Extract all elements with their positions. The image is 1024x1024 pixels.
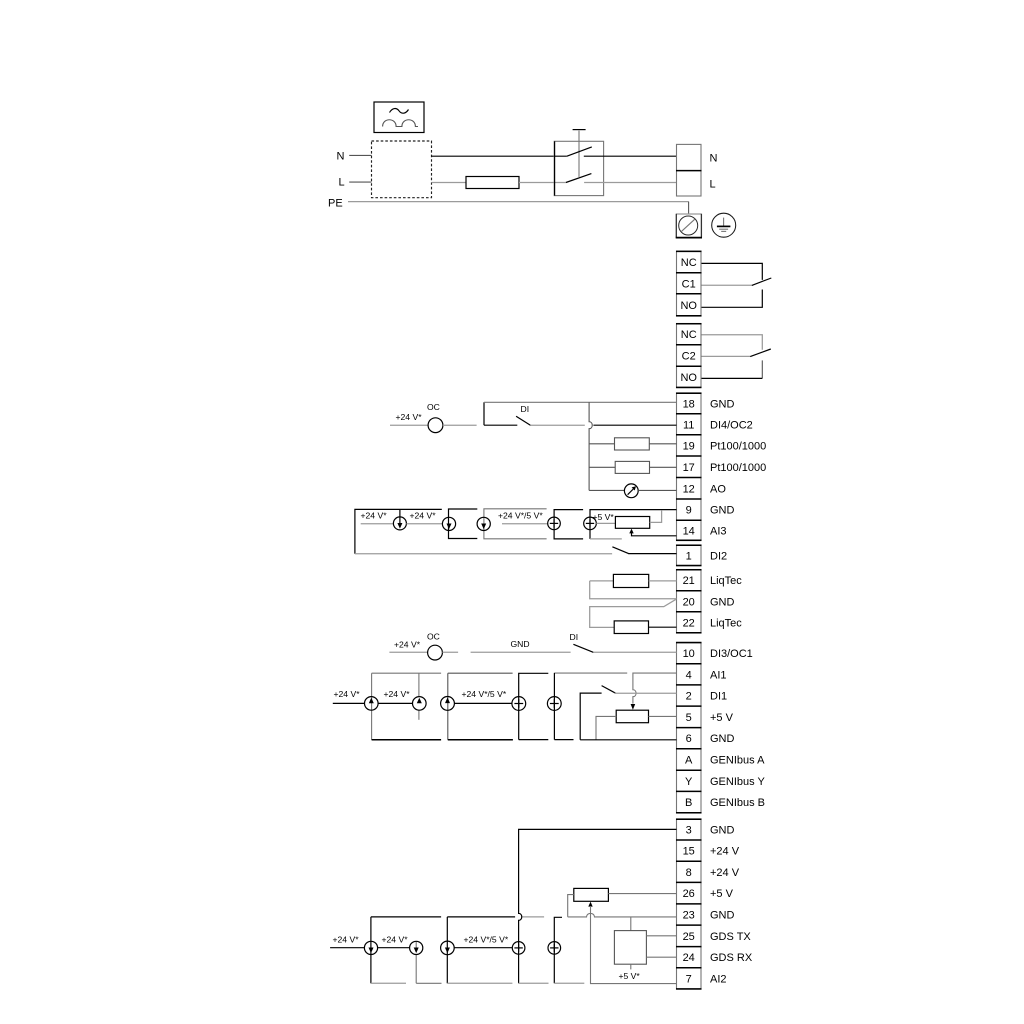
svg-text:Y: Y [685, 776, 693, 788]
svg-text:+24 V*/5 V*: +24 V*/5 V* [498, 511, 543, 521]
svg-text:8: 8 [686, 867, 692, 879]
svg-text:C2: C2 [682, 351, 696, 363]
svg-text:+5 V: +5 V [710, 712, 734, 724]
svg-text:LiqTec: LiqTec [710, 617, 742, 629]
svg-text:4: 4 [686, 669, 692, 681]
svg-text:12: 12 [683, 483, 695, 495]
svg-text:NO: NO [680, 300, 697, 312]
svg-text:GND: GND [710, 398, 735, 410]
svg-text:5: 5 [686, 712, 692, 724]
svg-text:GND: GND [710, 910, 735, 922]
svg-text:AI3: AI3 [710, 525, 727, 537]
svg-text:+24 V*/5 V*: +24 V*/5 V* [462, 689, 507, 699]
svg-text:DI: DI [521, 404, 530, 414]
svg-text:+5 V: +5 V [710, 888, 734, 900]
svg-text:Pt100/1000: Pt100/1000 [710, 440, 766, 452]
svg-text:AI1: AI1 [710, 669, 727, 681]
svg-text:DI3/OC1: DI3/OC1 [710, 648, 753, 660]
svg-text:9: 9 [686, 505, 692, 517]
svg-text:+24 V*: +24 V* [384, 689, 411, 699]
svg-text:25: 25 [683, 931, 695, 943]
svg-text:24: 24 [683, 952, 695, 964]
svg-text:GND: GND [710, 733, 735, 745]
svg-text:L: L [710, 179, 716, 191]
svg-text:AI2: AI2 [710, 973, 727, 985]
svg-text:GND: GND [710, 505, 735, 517]
svg-text:AO: AO [710, 483, 726, 495]
svg-text:OC: OC [427, 402, 440, 412]
svg-text:10: 10 [683, 648, 695, 660]
svg-text:GENIbus Y: GENIbus Y [710, 776, 765, 788]
svg-text:NC: NC [681, 329, 697, 341]
svg-text:20: 20 [683, 596, 695, 608]
svg-text:26: 26 [683, 888, 695, 900]
svg-text:PE: PE [328, 198, 343, 210]
svg-text:GDS RX: GDS RX [710, 952, 753, 964]
svg-text:23: 23 [683, 910, 695, 922]
svg-text:GND: GND [511, 639, 530, 649]
svg-text:+24 V*: +24 V* [410, 511, 437, 521]
svg-text:N: N [337, 151, 345, 163]
svg-text:3: 3 [686, 824, 692, 836]
svg-text:C1: C1 [682, 278, 696, 290]
svg-text:+24 V*: +24 V* [394, 640, 421, 650]
svg-text:OC: OC [427, 632, 440, 642]
svg-text:15: 15 [683, 846, 695, 858]
svg-text:NO: NO [680, 372, 697, 384]
svg-text:1: 1 [686, 550, 692, 562]
svg-text:+24 V*: +24 V* [334, 689, 361, 699]
svg-text:+24 V*: +24 V* [382, 935, 409, 945]
svg-text:Pt100/1000: Pt100/1000 [710, 462, 766, 474]
svg-text:+24 V*/5 V*: +24 V*/5 V* [464, 935, 509, 945]
svg-text:+24 V: +24 V [710, 846, 740, 858]
svg-text:GENIbus B: GENIbus B [710, 797, 765, 809]
svg-text:GND: GND [710, 824, 735, 836]
svg-text:+24 V: +24 V [710, 867, 740, 879]
svg-text:LiqTec: LiqTec [710, 575, 742, 587]
svg-text:+5 V*: +5 V* [593, 512, 615, 522]
svg-text:DI1: DI1 [710, 691, 727, 703]
svg-text:GENIbus A: GENIbus A [710, 755, 765, 767]
svg-text:N: N [710, 153, 718, 165]
svg-text:14: 14 [683, 525, 695, 537]
svg-text:GDS TX: GDS TX [710, 931, 751, 943]
svg-text:+24 V*: +24 V* [333, 935, 360, 945]
svg-text:B: B [685, 797, 692, 809]
svg-text:21: 21 [683, 575, 695, 587]
svg-text:A: A [685, 755, 693, 767]
svg-text:+24 V*: +24 V* [361, 511, 388, 521]
svg-text:2: 2 [686, 691, 692, 703]
svg-text:NC: NC [681, 257, 697, 269]
svg-text:18: 18 [683, 398, 695, 410]
svg-text:6: 6 [686, 733, 692, 745]
svg-text:L: L [339, 177, 345, 189]
svg-text:DI: DI [570, 632, 579, 642]
svg-text:+24 V*: +24 V* [396, 412, 423, 422]
svg-text:11: 11 [683, 419, 694, 431]
svg-text:GND: GND [710, 596, 735, 608]
svg-text:DI2: DI2 [710, 550, 727, 562]
svg-text:+5 V*: +5 V* [619, 971, 641, 981]
svg-text:7: 7 [686, 973, 692, 985]
svg-text:DI4/OC2: DI4/OC2 [710, 419, 753, 431]
svg-text:22: 22 [683, 617, 695, 629]
svg-text:19: 19 [683, 440, 695, 452]
svg-text:17: 17 [683, 462, 695, 474]
